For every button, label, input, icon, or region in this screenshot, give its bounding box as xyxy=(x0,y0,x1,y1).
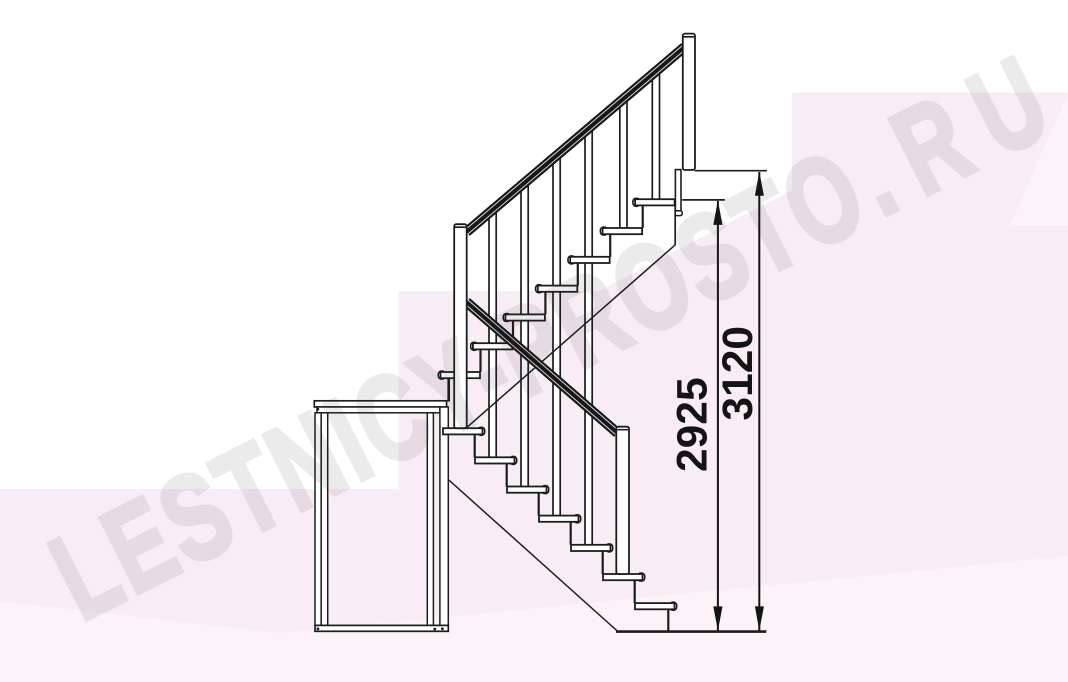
svg-text:3120: 3120 xyxy=(715,326,762,421)
svg-text:2925: 2925 xyxy=(670,377,717,472)
